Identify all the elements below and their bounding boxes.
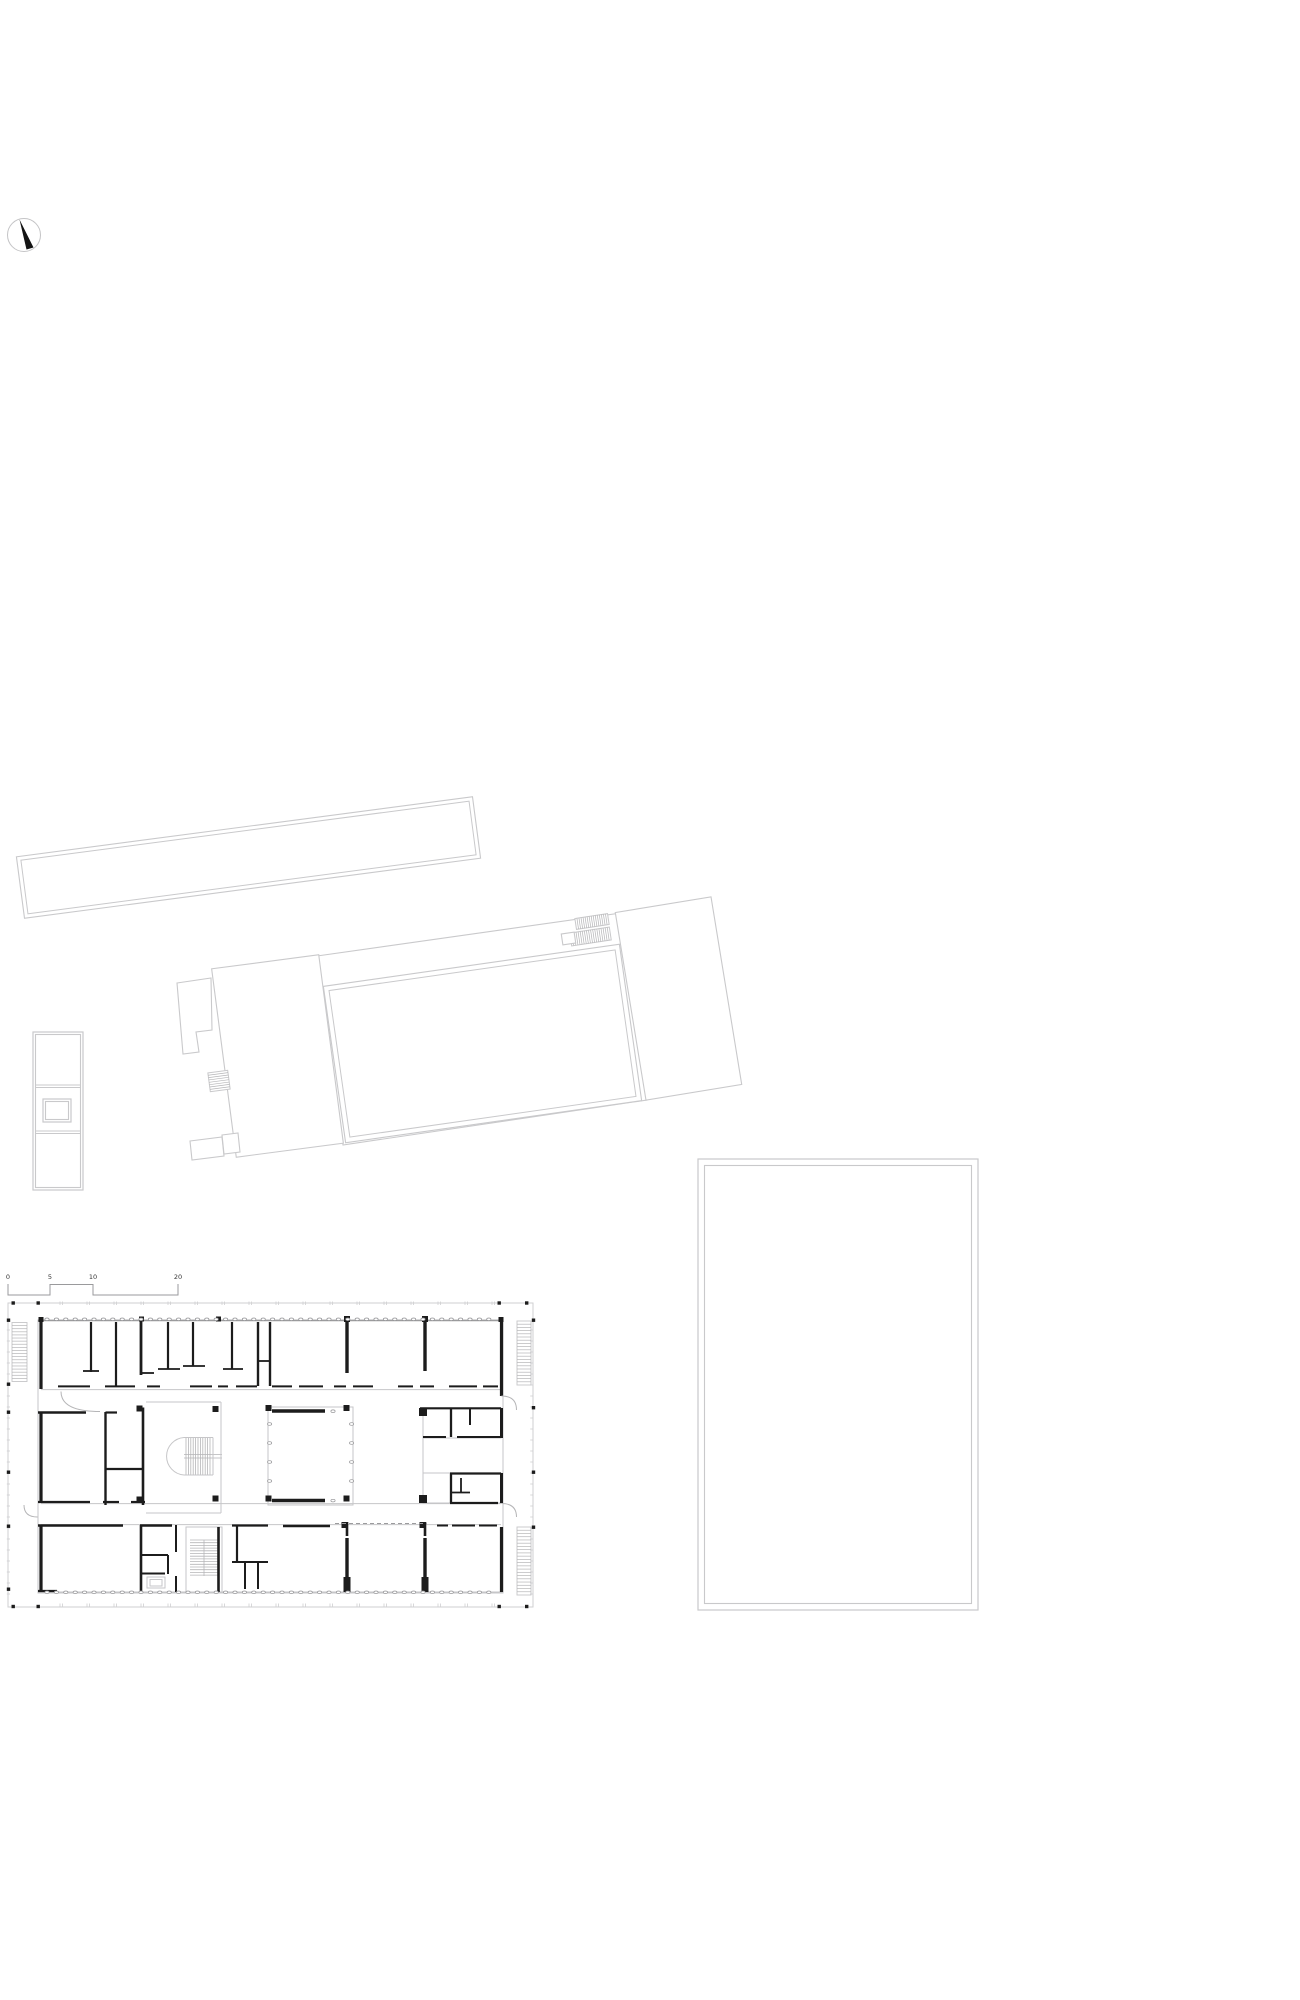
north-compass [8, 219, 41, 252]
site-plan-svg: 051020 [0, 0, 1300, 2000]
west-wing-annex [177, 978, 212, 1054]
east-building-landing [561, 932, 575, 945]
scale-bar-line [8, 1284, 178, 1295]
compass-needle [20, 220, 34, 250]
west-wing-annex-south [190, 1137, 224, 1160]
plan-walls [38, 1320, 502, 1592]
scale-label: 5 [48, 1273, 52, 1281]
elevator-inner [150, 1580, 162, 1587]
sports-field [698, 1159, 978, 1610]
scale-label: 0 [6, 1273, 10, 1281]
kiosk-inner-cell [43, 1099, 71, 1122]
west-facade-stair [12, 1323, 27, 1382]
plan-main-stair [167, 1438, 210, 1476]
west-wing-exterior-stair [208, 1070, 230, 1091]
west-wing-annex-south-2 [222, 1133, 240, 1154]
long-building [16, 797, 480, 919]
atrium-court [268, 1407, 353, 1505]
east-facade-stair-north [517, 1321, 531, 1385]
wc-cluster-upper [423, 1408, 501, 1438]
scale-label: 10 [89, 1273, 97, 1281]
scale-bar: 051020 [6, 1273, 182, 1295]
plan-exterior-stairs [12, 1321, 531, 1595]
scale-label: 20 [174, 1273, 182, 1281]
wc-cluster-lower [423, 1473, 501, 1503]
east-facade-stair-south [517, 1527, 531, 1595]
architectural-drawing-page: 051020 [0, 0, 1300, 2000]
